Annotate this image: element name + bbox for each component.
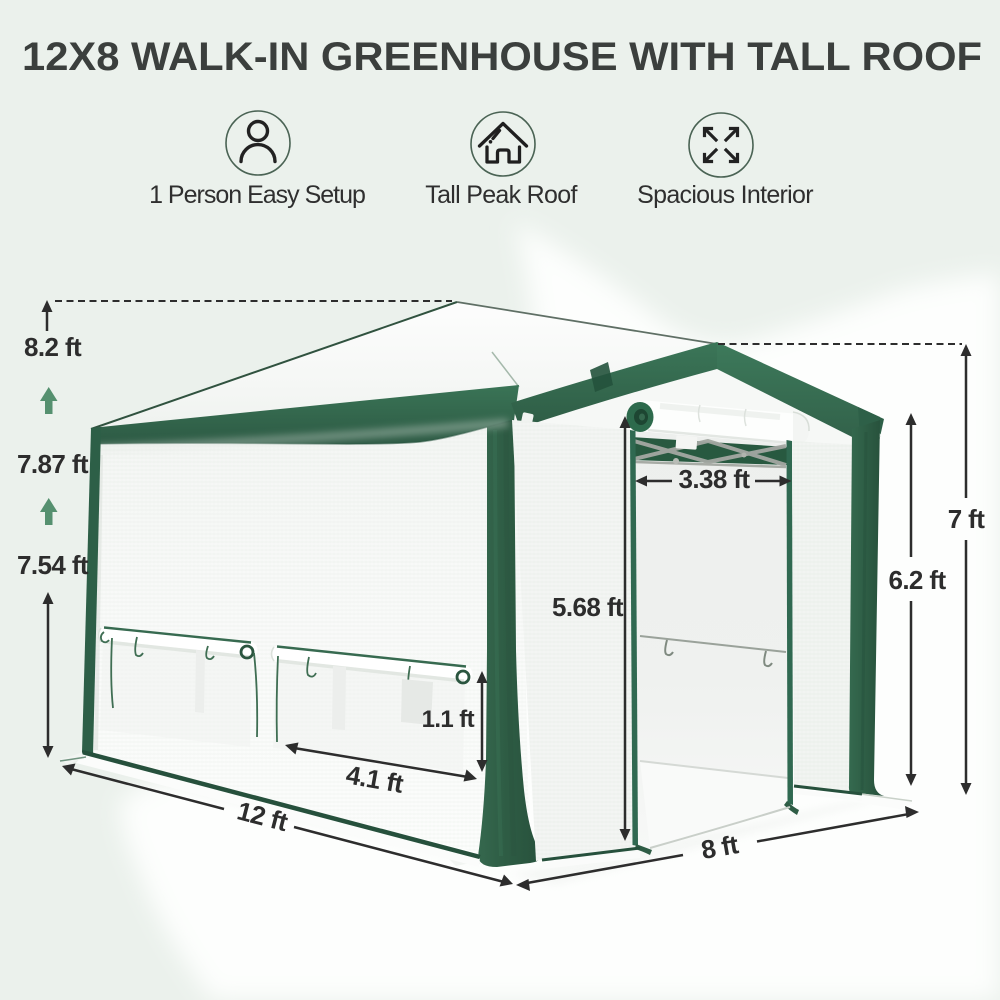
svg-text:7.87 ft: 7.87 ft [17, 449, 89, 479]
svg-text:7 ft: 7 ft [948, 504, 986, 534]
svg-text:3.38 ft: 3.38 ft [679, 464, 751, 494]
svg-text:Tall Peak Roof: Tall Peak Roof [425, 181, 577, 209]
svg-text:1.1 ft: 1.1 ft [422, 706, 475, 733]
svg-text:8 ft: 8 ft [699, 829, 741, 865]
svg-text:8.2 ft: 8.2 ft [24, 332, 82, 362]
svg-text:12X8 WALK-IN GREENHOUSE WITH T: 12X8 WALK-IN GREENHOUSE WITH TALL ROOF [22, 35, 982, 79]
svg-text:6.2 ft: 6.2 ft [888, 565, 946, 595]
svg-text:5.68 ft: 5.68 ft [552, 592, 624, 622]
svg-text:1 Person Easy Setup: 1 Person Easy Setup [149, 181, 365, 209]
svg-text:7.54 ft: 7.54 ft [17, 550, 89, 580]
svg-text:Spacious Interior: Spacious Interior [637, 181, 813, 209]
